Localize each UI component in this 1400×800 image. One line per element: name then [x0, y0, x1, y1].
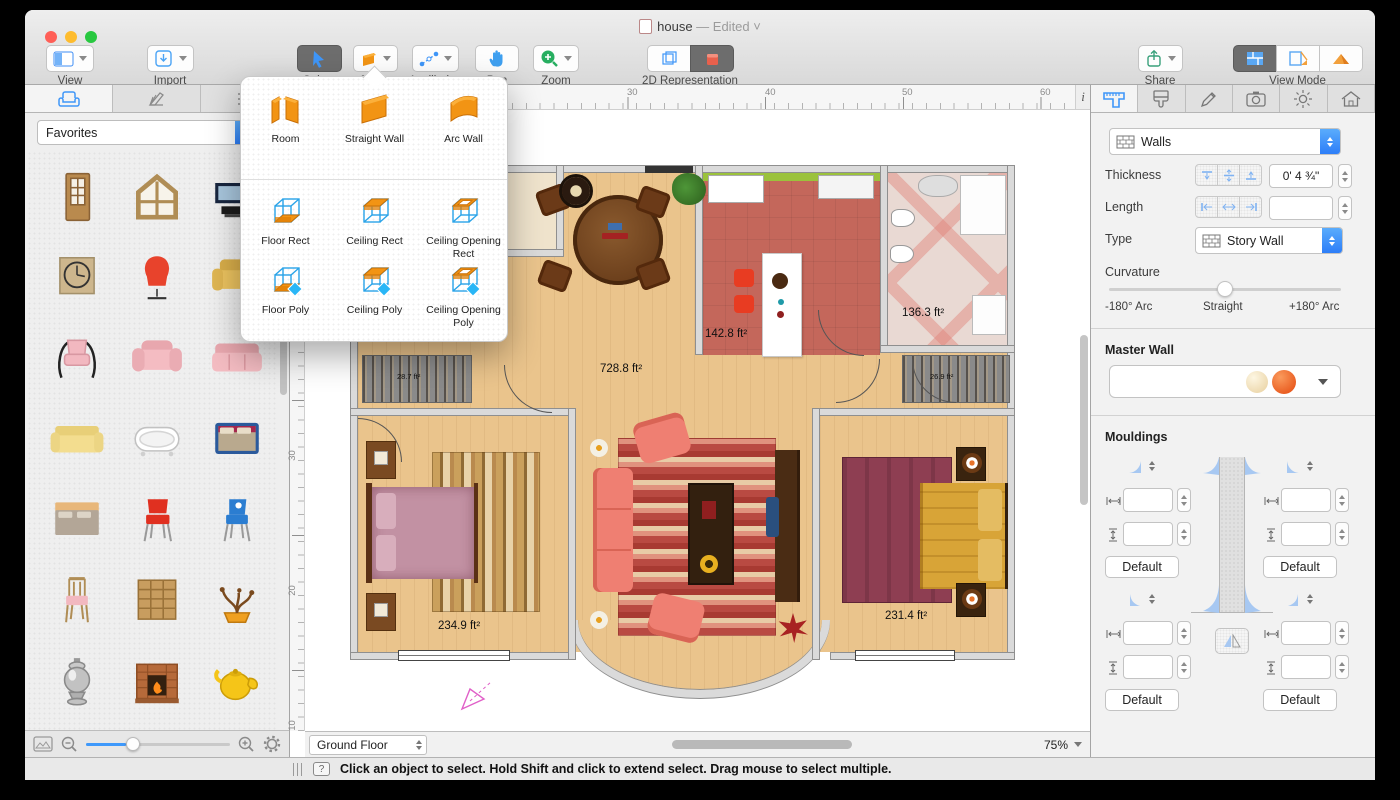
armchair-icon	[58, 89, 80, 109]
view-button[interactable]	[46, 45, 94, 72]
window-bedroom-left[interactable]	[398, 650, 510, 661]
wireframe-box-icon	[659, 49, 679, 68]
app-window: house — Edited ˅ View Import Select	[25, 10, 1375, 780]
floor-lamp-2[interactable]	[590, 611, 608, 629]
swatches-icon	[146, 89, 168, 109]
thickness-align-buttons	[1195, 164, 1262, 186]
library-item-sofa-yellow[interactable]	[45, 408, 109, 472]
coffee-decor-gold	[700, 555, 718, 573]
moulding-width-icon	[1263, 626, 1279, 641]
moulding-profile-icon[interactable]	[1127, 460, 1143, 475]
sidebar-tab-materials[interactable]	[113, 85, 201, 112]
toilet-2[interactable]	[890, 245, 914, 263]
window-chrome: house — Edited ˅ View Import Select	[25, 10, 1375, 85]
wall-kitchen-bath[interactable]	[880, 165, 888, 353]
representation-solid-button[interactable]	[690, 45, 734, 72]
document-icon	[639, 19, 652, 34]
tool-straight-wall[interactable]: Straight Wall	[330, 89, 419, 146]
master-wall-label: Master Wall	[1105, 343, 1174, 357]
ruler-mark: 30	[627, 87, 638, 98]
tool-ceiling-poly[interactable]: Ceiling Poly	[330, 260, 419, 329]
toolbar-group-view: View	[35, 45, 105, 87]
slider-knob[interactable]	[126, 737, 140, 751]
info-button[interactable]: i	[1075, 85, 1090, 110]
moulding-base-left-default-button[interactable]: Default	[1105, 689, 1179, 711]
floor-selector[interactable]: Ground Floor	[309, 735, 427, 755]
length-field[interactable]	[1269, 196, 1333, 220]
master-wall-select[interactable]	[1109, 365, 1341, 398]
zoom-plus-icon	[540, 49, 559, 68]
object-type-stepper	[1320, 129, 1340, 154]
zoom-level-select[interactable]: 75%	[1024, 735, 1086, 754]
room-area-label-closet_right: 26.9 ft²	[930, 372, 953, 381]
ruler-mark: 10	[287, 720, 298, 731]
library-item-teapot[interactable]	[205, 651, 269, 715]
library-item-bathtub[interactable]	[125, 408, 189, 472]
library-item-bed-gray[interactable]	[45, 489, 109, 553]
moulding-height-icon	[1263, 660, 1279, 675]
brick-wall-icon	[1116, 135, 1135, 149]
tool-arc-wall[interactable]: Arc Wall	[419, 89, 508, 146]
window-bedroom-right[interactable]	[855, 650, 955, 661]
moulding-profile-stepper[interactable]	[1149, 594, 1155, 604]
mouldings-label: Mouldings	[1105, 430, 1168, 444]
category-select[interactable]: Favorites	[37, 120, 257, 145]
curvature-label: Curvature	[1105, 265, 1160, 279]
thickness-align-center-button[interactable]	[1217, 164, 1240, 186]
thickness-align-left-button[interactable]	[1195, 164, 1218, 186]
moulding-base-right-default-button[interactable]: Default	[1263, 689, 1337, 711]
moulding-base-right-width-stepper[interactable]	[1335, 621, 1349, 645]
brick-wall-icon	[1202, 234, 1221, 248]
library-item-egg-chair[interactable]	[125, 246, 189, 310]
pan-button[interactable]	[475, 45, 519, 72]
inspector-tab-materials[interactable]	[1138, 85, 1185, 112]
toolbar-group-zoom: Zoom	[527, 45, 585, 87]
auxiliaries-button[interactable]	[412, 45, 459, 72]
moulding-profile-icon[interactable]	[1285, 460, 1301, 475]
chevron-down-icon	[1318, 379, 1328, 385]
wall-type-select[interactable]: Story Wall	[1195, 227, 1343, 254]
island-bowl	[772, 273, 788, 289]
lamp-ns-1	[374, 451, 388, 465]
ruler-mark: 30	[287, 450, 298, 461]
kitchen-island[interactable]	[762, 253, 802, 357]
tool-floor-poly[interactable]: Floor Poly	[241, 260, 330, 329]
inspector-panel: Walls Thickness 0' 4 ¾" Length Ty	[1090, 85, 1375, 757]
moulding-profile-stepper[interactable]	[1307, 461, 1313, 471]
auxiliaries-icon	[419, 50, 439, 68]
caliper-icon	[1102, 89, 1126, 109]
library-footer	[25, 730, 289, 757]
moulding-base-right-width-field[interactable]	[1281, 621, 1331, 645]
moulding-base-left-height-stepper[interactable]	[1177, 655, 1191, 679]
library-item-bed-double[interactable]	[205, 408, 269, 472]
lamp-ns-2	[374, 603, 388, 617]
moulding-height-icon	[1105, 527, 1121, 542]
ruler-mark: 60	[1040, 87, 1051, 98]
moulding-base-left-width-stepper[interactable]	[1177, 621, 1191, 645]
moulding-crown-left-width-field[interactable]	[1123, 488, 1173, 512]
floor-lamp-1[interactable]	[590, 439, 608, 457]
length-label: Length	[1105, 200, 1143, 214]
gear-icon[interactable]	[263, 735, 281, 753]
floor-selector-stepper	[416, 740, 422, 750]
island-dot-red	[777, 311, 784, 318]
status-message: Click an object to select. Hold Shift an…	[340, 762, 892, 776]
wall-material-sphere-cream	[1246, 371, 1268, 393]
shower[interactable]	[960, 175, 1006, 235]
wall-bedroom-right-top[interactable]	[812, 408, 1015, 416]
library-item-window[interactable]	[125, 165, 189, 229]
kitchen-sink[interactable]	[818, 175, 874, 199]
inspector-tab-light[interactable]	[1280, 85, 1327, 112]
sofa-cushion-line-2	[597, 549, 631, 551]
wall-crown-flare-left	[1203, 457, 1219, 475]
floor-plan-icon	[1245, 50, 1265, 67]
curvature-slider[interactable]	[1109, 288, 1341, 291]
tools-popup: RoomStraight WallArc Wall Floor RectCeil…	[240, 76, 508, 342]
library-item-chair-wooden[interactable]	[45, 570, 109, 634]
length-stepper[interactable]	[1338, 196, 1352, 220]
wall-bath-bottom[interactable]	[880, 345, 1015, 353]
inspector-tab-walls[interactable]	[1091, 85, 1138, 112]
bed-right-pillow-2	[978, 539, 1002, 581]
length-anchor-center-button[interactable]	[1217, 196, 1240, 218]
thickness-align-right-button[interactable]	[1239, 164, 1262, 186]
roof-3d-icon	[1331, 50, 1351, 67]
house-icon	[1340, 89, 1362, 109]
library-item-samovar[interactable]	[45, 651, 109, 715]
sofa-cushion-line-1	[597, 508, 631, 510]
inspector-tab-camera[interactable]	[1233, 85, 1280, 112]
solid-box-icon	[703, 50, 721, 68]
toolbar-group-import: Import	[135, 45, 205, 87]
tool-room[interactable]: Room	[241, 89, 330, 146]
canvas-vertical-scrollbar[interactable]	[1080, 335, 1088, 505]
sidebar-tab-furniture[interactable]	[25, 85, 113, 112]
moulding-height-icon	[1105, 660, 1121, 675]
moulding-crown-left-height-stepper[interactable]	[1177, 522, 1191, 546]
moulding-crown-right-width-field[interactable]	[1281, 488, 1331, 512]
brush-icon	[1151, 89, 1171, 109]
library-item-chair-red[interactable]	[125, 489, 189, 553]
hand-icon	[488, 49, 506, 68]
tool-ceiling-opening-poly[interactable]: Ceiling Opening Poly	[419, 260, 508, 329]
bar-stool-1[interactable]	[734, 269, 754, 287]
bar-stool-2[interactable]	[734, 295, 754, 313]
moulding-crown-left-width-stepper[interactable]	[1177, 488, 1191, 512]
sun-icon	[1293, 89, 1313, 109]
sofa-living[interactable]	[593, 468, 633, 592]
kitchen-stove[interactable]	[708, 175, 764, 203]
canvas-bottom-bar: Ground Floor 75%	[305, 731, 1090, 757]
representation-wireframe-button[interactable]	[647, 45, 691, 72]
compass-arrow	[454, 673, 498, 717]
wall-base-flare-left	[1203, 585, 1219, 613]
view-mode-2d-button[interactable]	[1233, 45, 1277, 72]
bowl-speaker[interactable]	[562, 177, 590, 205]
library-item-chair-pink-metal[interactable]	[45, 327, 109, 391]
toilet-1[interactable]	[891, 209, 915, 227]
thickness-stepper[interactable]	[1338, 164, 1352, 188]
inspector-tab-edit[interactable]	[1186, 85, 1233, 112]
desk-chair[interactable]	[766, 497, 779, 537]
library-item-chair-blue[interactable]	[205, 489, 269, 553]
plant-corner[interactable]	[672, 173, 706, 205]
tool-floor-rect[interactable]: Floor Rect	[241, 191, 330, 260]
pillow-2	[376, 535, 396, 571]
moulding-profile-icon[interactable]	[1285, 593, 1301, 608]
moulding-width-icon	[1105, 626, 1121, 641]
curvature-mid-label: Straight	[1203, 301, 1243, 313]
bath-sink[interactable]	[918, 175, 958, 197]
room-area-label-closet_left: 28.7 ft²	[397, 372, 420, 381]
zoom-out-icon[interactable]	[61, 736, 78, 753]
moulding-crown-right-height-field[interactable]	[1281, 522, 1331, 546]
wall-material-sphere-orange	[1272, 370, 1296, 394]
view-mode-3d-button[interactable]	[1319, 45, 1363, 72]
moulding-base-left-height-field[interactable]	[1123, 655, 1173, 679]
view-icon	[53, 50, 74, 68]
inspector-tab-building[interactable]	[1328, 85, 1375, 112]
room-area-label-bedroom_left: 234.9 ft²	[438, 620, 480, 632]
table-decor	[602, 233, 628, 239]
zoom-button[interactable]	[533, 45, 579, 72]
bath-cabinet[interactable]	[972, 295, 1006, 335]
window-title: house — Edited ˅	[25, 19, 1375, 34]
curvature-knob[interactable]	[1217, 281, 1233, 297]
moulding-profile-icon[interactable]	[1127, 593, 1143, 608]
room-area-label-kitchen: 142.8 ft²	[705, 328, 747, 340]
select-button[interactable]	[297, 45, 342, 72]
share-icon	[1145, 49, 1163, 68]
tool-ceiling-opening-rect[interactable]: Ceiling Opening Rect	[419, 191, 508, 260]
speaker-1	[962, 453, 982, 473]
thickness-label: Thickness	[1105, 168, 1161, 182]
toolbar-group-2d-representation: 2D Representation	[625, 45, 755, 87]
view-mode-elevation-button[interactable]	[1276, 45, 1320, 72]
pencil-icon	[1199, 89, 1219, 109]
library-item-fireplace[interactable]	[125, 651, 189, 715]
wall-bedroom-left-right[interactable]	[568, 408, 576, 660]
help-bubble-icon[interactable]: ?	[313, 762, 330, 776]
import-button[interactable]	[147, 45, 194, 72]
type-label: Type	[1105, 232, 1132, 246]
wall-type-stepper	[1322, 228, 1342, 253]
moulding-mirror-button[interactable]	[1215, 628, 1249, 654]
thumbnail-size-slider[interactable]	[86, 743, 230, 746]
table-decor-2	[608, 223, 622, 230]
moulding-height-icon	[1263, 527, 1279, 542]
moulding-base-right-height-field[interactable]	[1281, 655, 1331, 679]
preview-image-icon[interactable]	[33, 736, 53, 752]
object-type-select[interactable]: Walls	[1109, 128, 1341, 155]
zoom-in-icon[interactable]	[238, 736, 255, 753]
status-bar: ? Click an object to select. Hold Shift …	[25, 757, 1375, 780]
moulding-width-icon	[1263, 493, 1279, 508]
length-align-buttons	[1195, 196, 1262, 218]
share-button[interactable]	[1138, 45, 1183, 72]
moulding-crown-left-height-field[interactable]	[1123, 522, 1173, 546]
import-icon	[154, 49, 174, 68]
moulding-base-right-height-stepper[interactable]	[1335, 655, 1349, 679]
moulding-crown-left-default-button[interactable]: Default	[1105, 556, 1179, 578]
length-anchor-right-button[interactable]	[1239, 196, 1262, 218]
bed-left-foot	[474, 483, 478, 583]
ruler-mark: 20	[287, 585, 298, 596]
length-anchor-left-button[interactable]	[1195, 196, 1218, 218]
wall-bedroom-right-left[interactable]	[812, 408, 820, 660]
coffee-decor-red	[702, 501, 716, 519]
category-select-value: Favorites	[46, 126, 97, 140]
tool-ceiling-rect[interactable]: Ceiling Rect	[330, 191, 419, 260]
bed-right-pillow-1	[978, 489, 1002, 531]
room-area-label-bathroom: 136.3 ft²	[902, 307, 944, 319]
moulding-crown-right-default-button[interactable]: Default	[1263, 556, 1337, 578]
library-item-shelf-unit[interactable]	[125, 570, 189, 634]
library-item-wall-clock[interactable]	[45, 246, 109, 310]
camera-icon	[1245, 89, 1267, 109]
ruler-mark: 50	[902, 87, 913, 98]
moulding-crown-right-width-stepper[interactable]	[1335, 488, 1349, 512]
library-item-armchair-pink[interactable]	[125, 327, 189, 391]
thickness-field[interactable]: 0' 4 ¾"	[1269, 164, 1333, 188]
curvature-min-label: -180° Arc	[1105, 301, 1152, 313]
wall-cross-section	[1219, 457, 1245, 613]
room-area-label-bedroom_right: 231.4 ft²	[885, 610, 927, 622]
status-grip[interactable]	[293, 763, 303, 776]
curvature-max-label: +180° Arc	[1289, 301, 1339, 313]
pillow-1	[376, 493, 396, 529]
wall-crown-flare-right	[1245, 457, 1261, 475]
moulding-profile-stepper[interactable]	[1149, 461, 1155, 471]
moulding-profile-stepper[interactable]	[1307, 594, 1313, 604]
window-top-dark[interactable]	[645, 166, 693, 173]
toolbar-group-view-mode: View Mode	[1225, 45, 1370, 87]
moulding-width-icon	[1105, 493, 1121, 508]
moulding-base-left-width-field[interactable]	[1123, 621, 1173, 645]
speaker-2	[962, 589, 982, 609]
cursor-icon	[311, 50, 327, 68]
ruler-mark: 40	[765, 87, 776, 98]
elevation-icon	[1288, 50, 1308, 67]
canvas-horizontal-scrollbar[interactable]	[672, 740, 852, 749]
moulding-crown-right-height-stepper[interactable]	[1335, 522, 1349, 546]
library-item-door[interactable]	[45, 165, 109, 229]
island-dot-teal	[778, 299, 784, 305]
toolbar-group-share: Share	[1128, 45, 1192, 87]
library-item-bonsai[interactable]	[205, 570, 269, 634]
room-area-label-living: 728.8 ft²	[600, 363, 642, 375]
wall-base-flare-right	[1245, 585, 1261, 613]
bed-left-headboard[interactable]	[366, 483, 372, 583]
